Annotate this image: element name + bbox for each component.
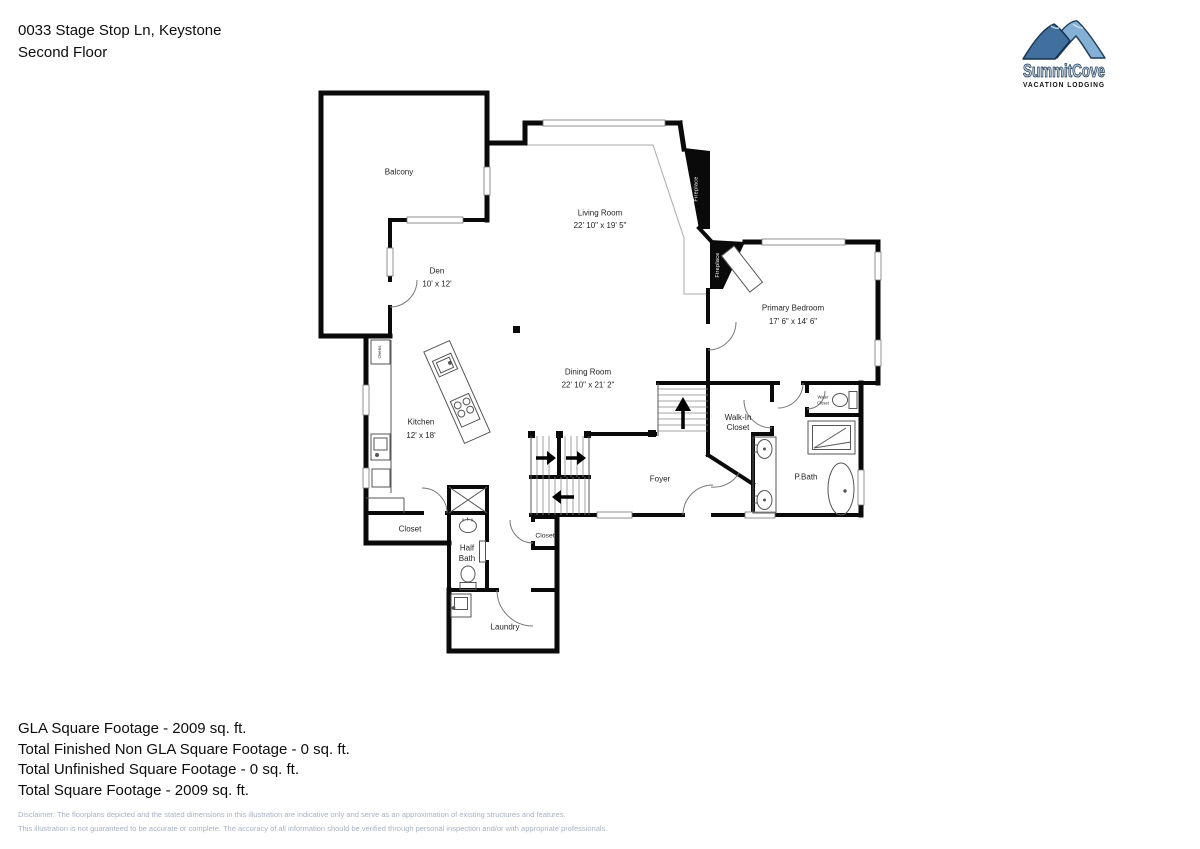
room-label-halfbath-2: Bath — [459, 554, 475, 563]
room-label-pbath: P.Bath — [795, 473, 818, 482]
room-label-kitchen: Kitchen — [408, 418, 435, 427]
bedroom-door-arc — [708, 322, 736, 350]
column-post — [513, 326, 520, 333]
window — [875, 252, 881, 280]
closet-door-arc — [422, 488, 447, 513]
summary-line-non-gla: Total Finished Non GLA Square Footage - … — [18, 740, 350, 761]
entry-door-arc — [683, 485, 713, 515]
disclaimer-line-2: This illustration is not guaranteed to b… — [18, 822, 607, 836]
room-label-water-closet-1: Water — [817, 395, 829, 400]
wc-toilet-bowl — [833, 394, 848, 407]
window — [407, 217, 463, 223]
halfbath-door-leaf — [480, 541, 486, 562]
window — [543, 120, 665, 126]
summary-line-unfinished: Total Unfinished Square Footage - 0 sq. … — [18, 760, 350, 781]
up-arrow-head — [675, 397, 691, 411]
kitchen-island — [424, 341, 490, 444]
left-arrow-head — [552, 490, 561, 504]
label-fireplace-bedroom: Fireplace — [715, 252, 721, 277]
halfbath-laundry-fixtures — [451, 518, 477, 618]
stairs-up — [658, 383, 708, 436]
foyer-bath-door-arc — [711, 473, 739, 487]
interior-walls — [366, 220, 878, 590]
window — [858, 470, 864, 505]
window — [484, 167, 490, 195]
room-label-walkin-2: Closet — [727, 423, 750, 432]
disclaimer-line-1: Disclaimer: The floorplans depicted and … — [18, 808, 607, 822]
window — [762, 239, 845, 245]
room-dims-dining: 22' 10" x 21' 2" — [562, 381, 615, 390]
room-label-water-closet-2: Closet — [817, 401, 830, 406]
understairs-closet-door-arc — [510, 520, 533, 543]
ceiling-break-line — [527, 145, 708, 294]
bath-door-arc — [778, 383, 803, 408]
kitchen-fixtures — [366, 340, 404, 513]
summary-line-gla: GLA Square Footage - 2009 sq. ft. — [18, 719, 350, 740]
room-label-primary: Primary Bedroom — [762, 304, 825, 313]
halfbath-toilet-bowl — [461, 566, 475, 582]
room-label-balcony: Balcony — [385, 168, 413, 177]
room-label-walkin-1: Walk-In — [725, 413, 752, 422]
right-arrow-head — [577, 451, 586, 465]
room-dims-kitchen: 12' x 18' — [406, 431, 436, 440]
room-label-living: Living Room — [578, 209, 623, 218]
faucet-icon — [448, 361, 452, 365]
label-fireplace-living: Fireplace — [694, 176, 700, 201]
disclaimer: Disclaimer: The floorplans depicted and … — [18, 808, 607, 835]
room-dims-primary: 17' 6" x 14' 6" — [769, 317, 817, 326]
room-label-laundry: Laundry — [491, 623, 520, 632]
room-label-closet1: Closet — [399, 525, 422, 534]
right-arrow-head — [547, 451, 556, 465]
halfbath-sink — [460, 520, 477, 533]
bathtub — [828, 463, 854, 515]
label-ovens: Ovens — [377, 345, 382, 359]
laundry-door-arc — [497, 590, 533, 626]
window — [363, 468, 369, 488]
room-dims-den: 10' x 12' — [422, 280, 452, 289]
room-label-den: Den — [430, 267, 445, 276]
window — [597, 512, 632, 518]
shaft-x — [449, 487, 487, 513]
window — [875, 340, 881, 366]
den-door-arc — [390, 280, 417, 307]
square-footage-summary: GLA Square Footage - 2009 sq. ft. Total … — [18, 719, 350, 801]
room-label-foyer: Foyer — [650, 475, 671, 484]
room-label-closet2: Closet — [535, 533, 554, 540]
door-arcs — [390, 280, 825, 626]
dishwasher — [372, 469, 390, 487]
summary-line-total: Total Square Footage - 2009 sq. ft. — [18, 781, 350, 802]
room-label-halfbath-1: Half — [460, 544, 475, 553]
floorplan-page: 0033 Stage Stop Ln, Keystone Second Floo… — [0, 0, 1200, 849]
window — [363, 385, 369, 415]
room-label-dining: Dining Room — [565, 368, 612, 377]
window — [387, 248, 393, 276]
wc-toilet-tank — [849, 392, 857, 409]
room-dims-living: 22' 10" x 19' 5" — [574, 221, 627, 230]
